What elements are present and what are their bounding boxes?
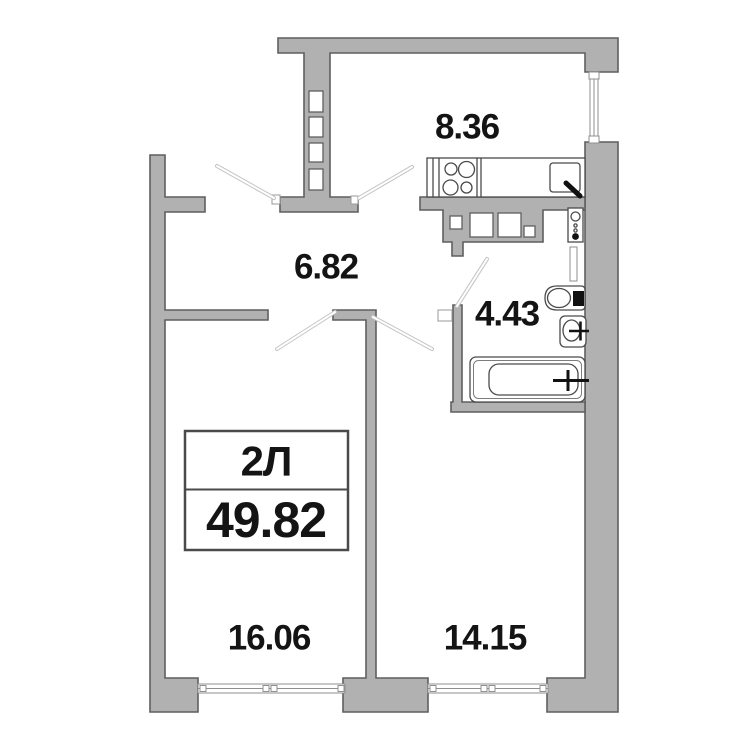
room-area-label-room-left: 16.06 — [228, 619, 311, 658]
vent-shaft — [498, 213, 521, 237]
vent-shaft — [309, 91, 323, 112]
door-frame-cap — [438, 310, 452, 321]
vent-shaft — [309, 143, 323, 162]
plumbing-riser-icon — [568, 208, 583, 242]
vent-shaft — [524, 226, 535, 237]
vent-shaft — [309, 117, 323, 137]
floor-plan: 8.36 6.82 4.43 16.06 14.15 2Л 49.82 — [0, 0, 750, 750]
kitchen-fixtures — [427, 158, 585, 197]
vent-shaft — [470, 213, 493, 237]
room-right-door-leaf — [373, 317, 432, 349]
apartment-type-label: 2Л — [241, 438, 292, 485]
entry-door-leaf — [217, 166, 274, 198]
toilet-icon — [545, 286, 585, 310]
room-area-label-bathroom: 4.43 — [475, 295, 540, 334]
window-room-right — [428, 684, 548, 693]
door-frame-cap — [351, 196, 358, 204]
window-kitchen — [589, 72, 599, 143]
room-area-label-room-right: 14.15 — [444, 619, 527, 658]
apartment-total-area: 49.82 — [206, 492, 326, 548]
bathtub-icon — [470, 357, 589, 402]
floor-plan-page: 8.36 6.82 4.43 16.06 14.15 2Л 49.82 — [0, 0, 750, 750]
room-area-label-kitchen: 8.36 — [435, 108, 500, 147]
washbasin-icon — [560, 316, 589, 347]
window-room-left — [198, 684, 345, 693]
pipe-duct — [570, 247, 577, 281]
vent-shaft — [450, 216, 462, 229]
vent-shaft — [309, 169, 323, 190]
room-left-door-leaf — [277, 312, 335, 349]
kitchen-door-leaf — [359, 167, 412, 198]
apartment-info-box: 2Л 49.82 — [185, 431, 348, 550]
kitchen-sink-icon — [550, 163, 580, 196]
room-area-label-hallway: 6.82 — [294, 248, 359, 287]
